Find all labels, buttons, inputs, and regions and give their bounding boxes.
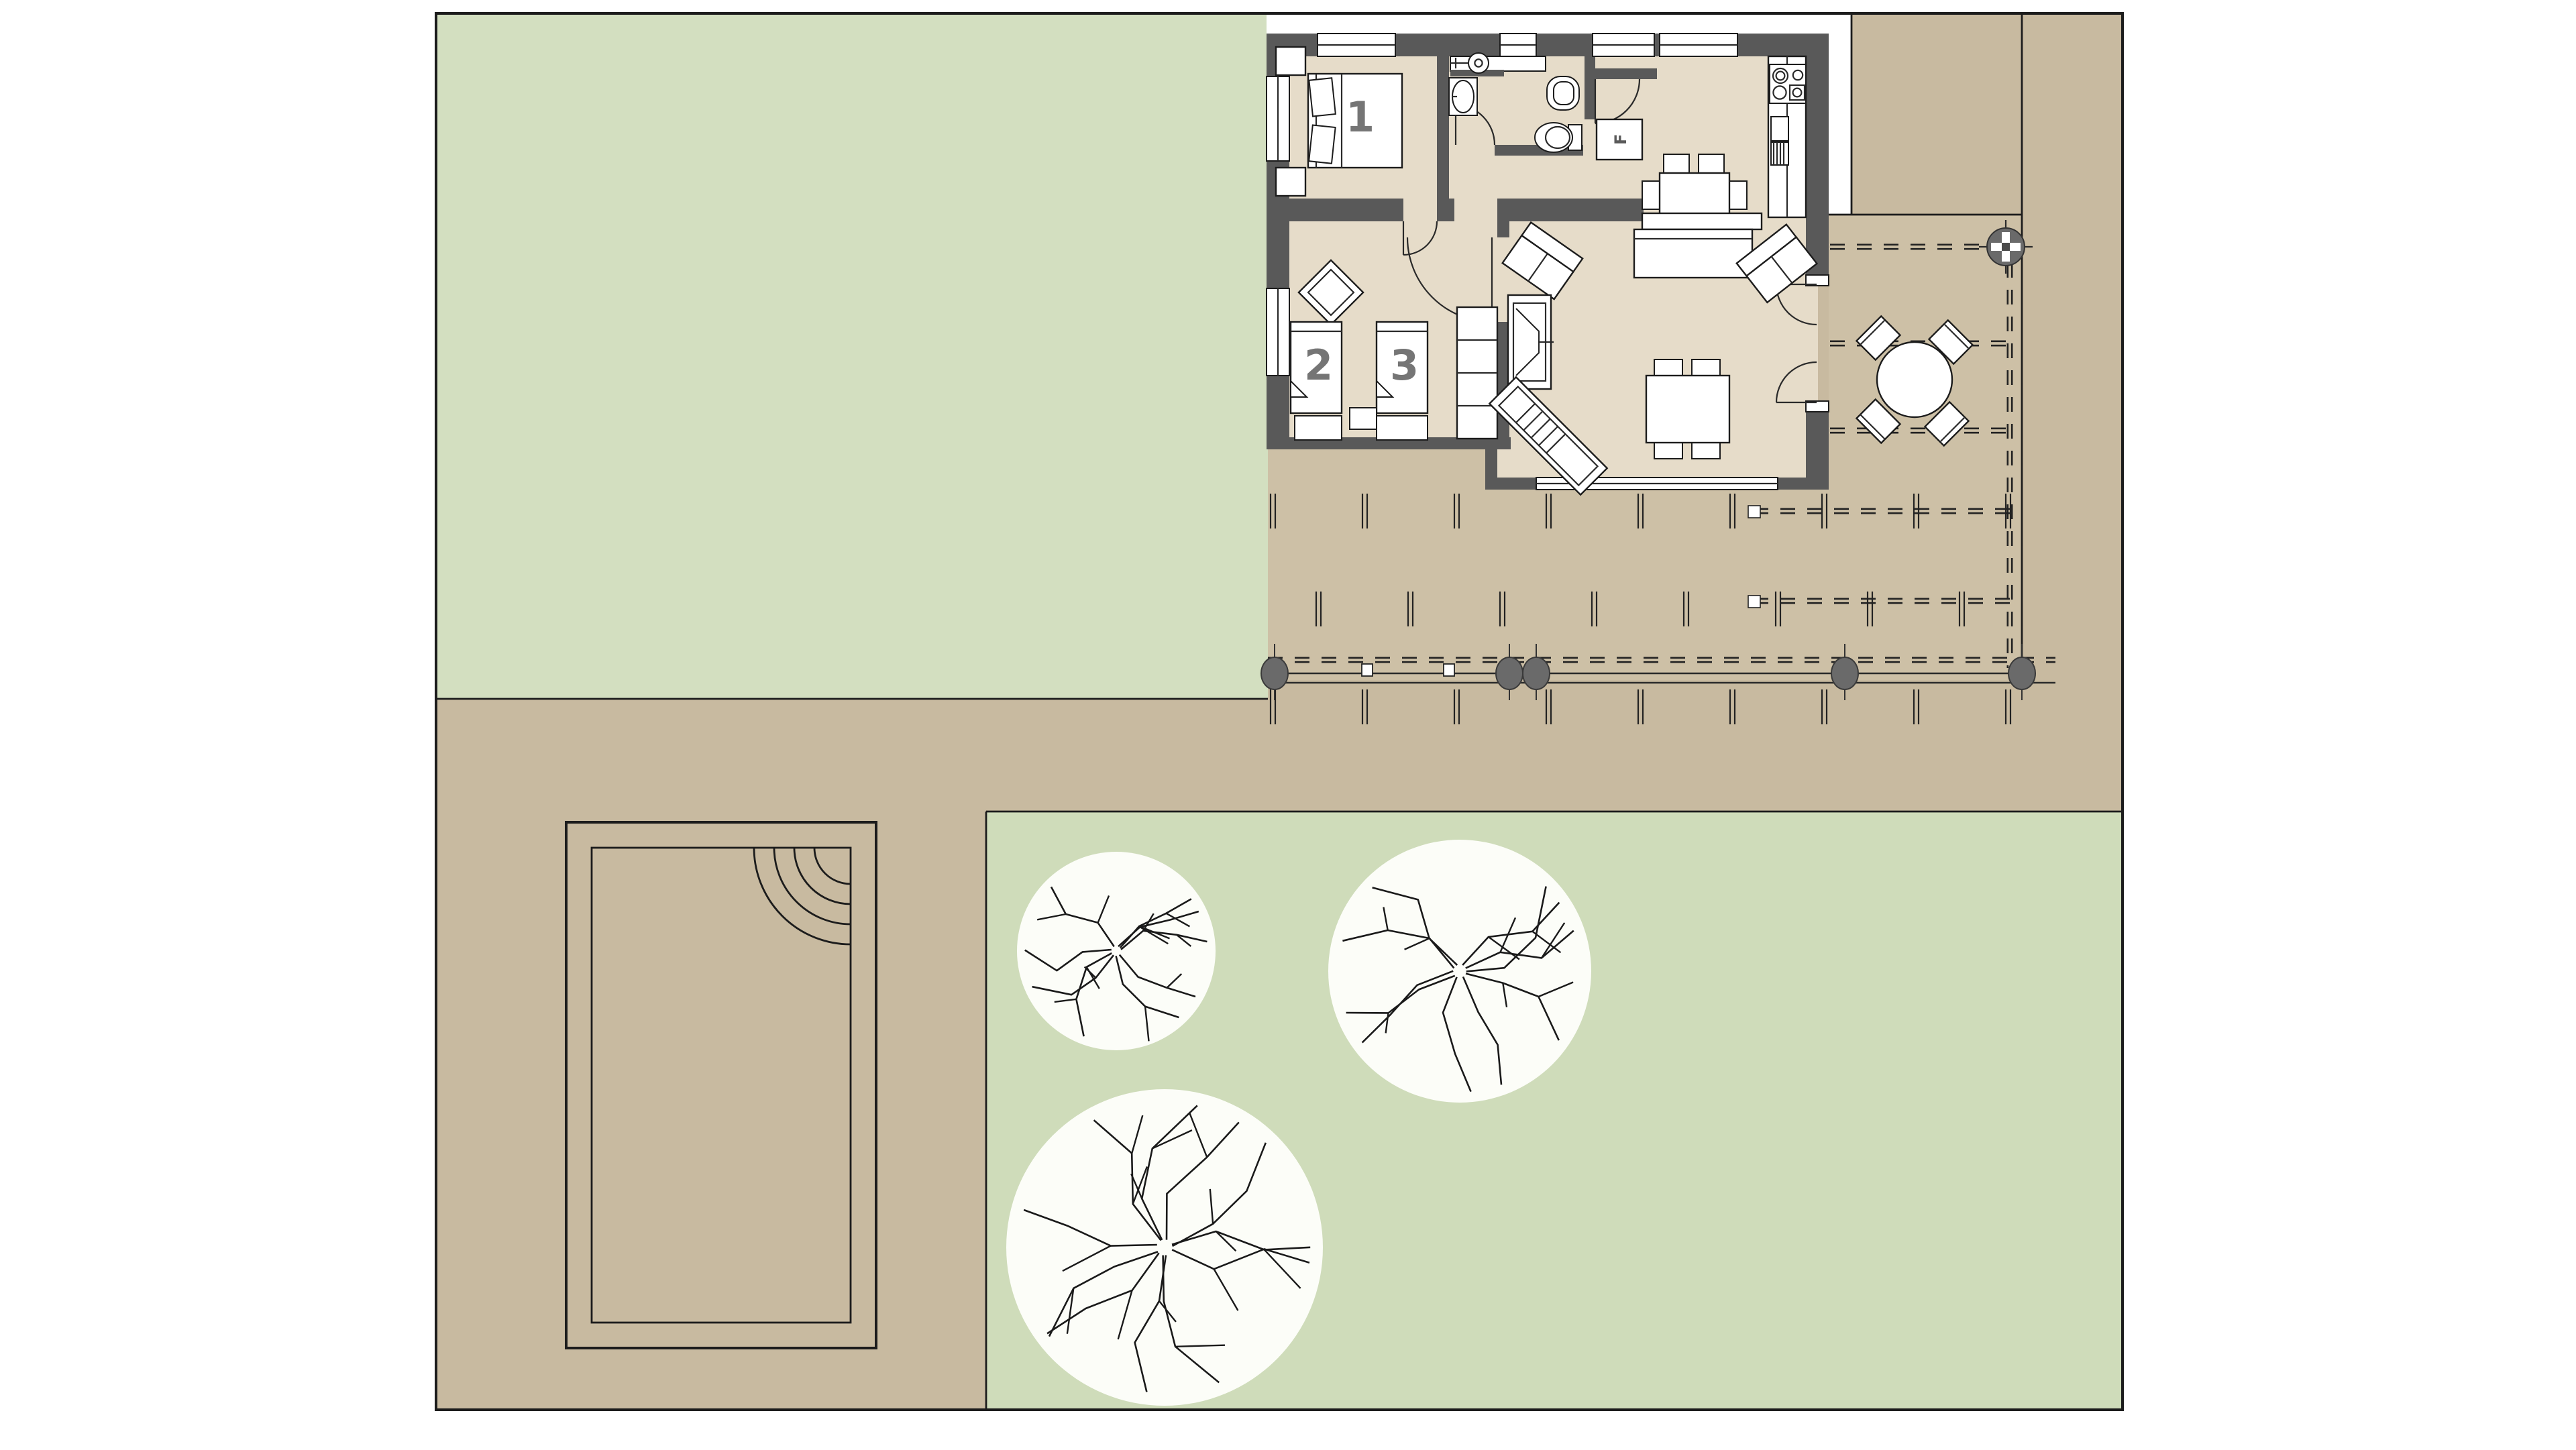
foot-dresser — [1295, 416, 1342, 440]
chair — [1692, 441, 1720, 459]
nightstand-north — [1276, 47, 1305, 75]
between-beds-table — [1350, 408, 1377, 429]
wall-living-step — [1485, 449, 1497, 479]
dishwasher-hatched — [1771, 142, 1788, 165]
wall-hung-toilet — [1547, 76, 1579, 110]
chair — [1642, 181, 1660, 209]
chair — [1699, 154, 1724, 174]
chair — [1664, 154, 1689, 174]
bedroom2-label: 2 — [1304, 341, 1333, 390]
wall-hall-south-b — [1497, 199, 1644, 221]
wall-east-north — [1806, 34, 1829, 284]
bedroom1-label: 1 — [1346, 93, 1375, 142]
kitchen-sink — [1771, 117, 1788, 141]
site-plan-drawing: 1 — [0, 0, 2576, 1450]
round-terrace-table — [1877, 342, 1952, 417]
wall-entry-stub — [1595, 68, 1657, 79]
window-kitchen-north — [1660, 34, 1737, 56]
wall-living-south-a — [1485, 478, 1536, 490]
bathroom-sink — [1449, 78, 1477, 115]
wall-bedroom1-south — [1267, 199, 1403, 221]
wall-bedroom23-east-top — [1497, 221, 1509, 237]
wall-east-south — [1806, 402, 1829, 490]
living-table — [1646, 376, 1729, 443]
tv-unit — [1508, 295, 1554, 389]
nightstand-south — [1276, 168, 1305, 196]
wardrobe — [1457, 307, 1497, 439]
appliance-f-label: F — [1611, 134, 1630, 145]
window-bedroom1-north — [1318, 34, 1395, 56]
chair — [1729, 181, 1747, 209]
house-east-path — [1829, 15, 1851, 215]
toilet — [1535, 123, 1582, 152]
pillow — [1309, 125, 1335, 163]
wall-hall-south-a — [1437, 199, 1454, 221]
window-bedroom23-west — [1267, 288, 1289, 376]
chair — [1654, 441, 1682, 459]
house-north-margin — [1267, 15, 1829, 34]
entry-door-north — [1593, 34, 1654, 56]
wall-living-south-b — [1778, 478, 1829, 490]
chair — [1654, 359, 1682, 377]
window-bath-north — [1500, 34, 1536, 56]
lawn-upper — [436, 13, 1268, 699]
foot-dresser — [1377, 416, 1428, 440]
wall-bath-entry-divider — [1585, 56, 1595, 119]
kitchen-table — [1660, 173, 1729, 217]
pillow — [1309, 78, 1335, 116]
chair — [1692, 359, 1720, 377]
entry: F — [1597, 119, 1642, 160]
house: 1 — [1267, 34, 1829, 495]
bedroom3-label: 3 — [1390, 341, 1419, 390]
wall-bedroom1-bath-divider — [1437, 56, 1449, 199]
cooktop-icon — [1770, 64, 1806, 103]
window-bedroom1-west — [1267, 76, 1289, 161]
